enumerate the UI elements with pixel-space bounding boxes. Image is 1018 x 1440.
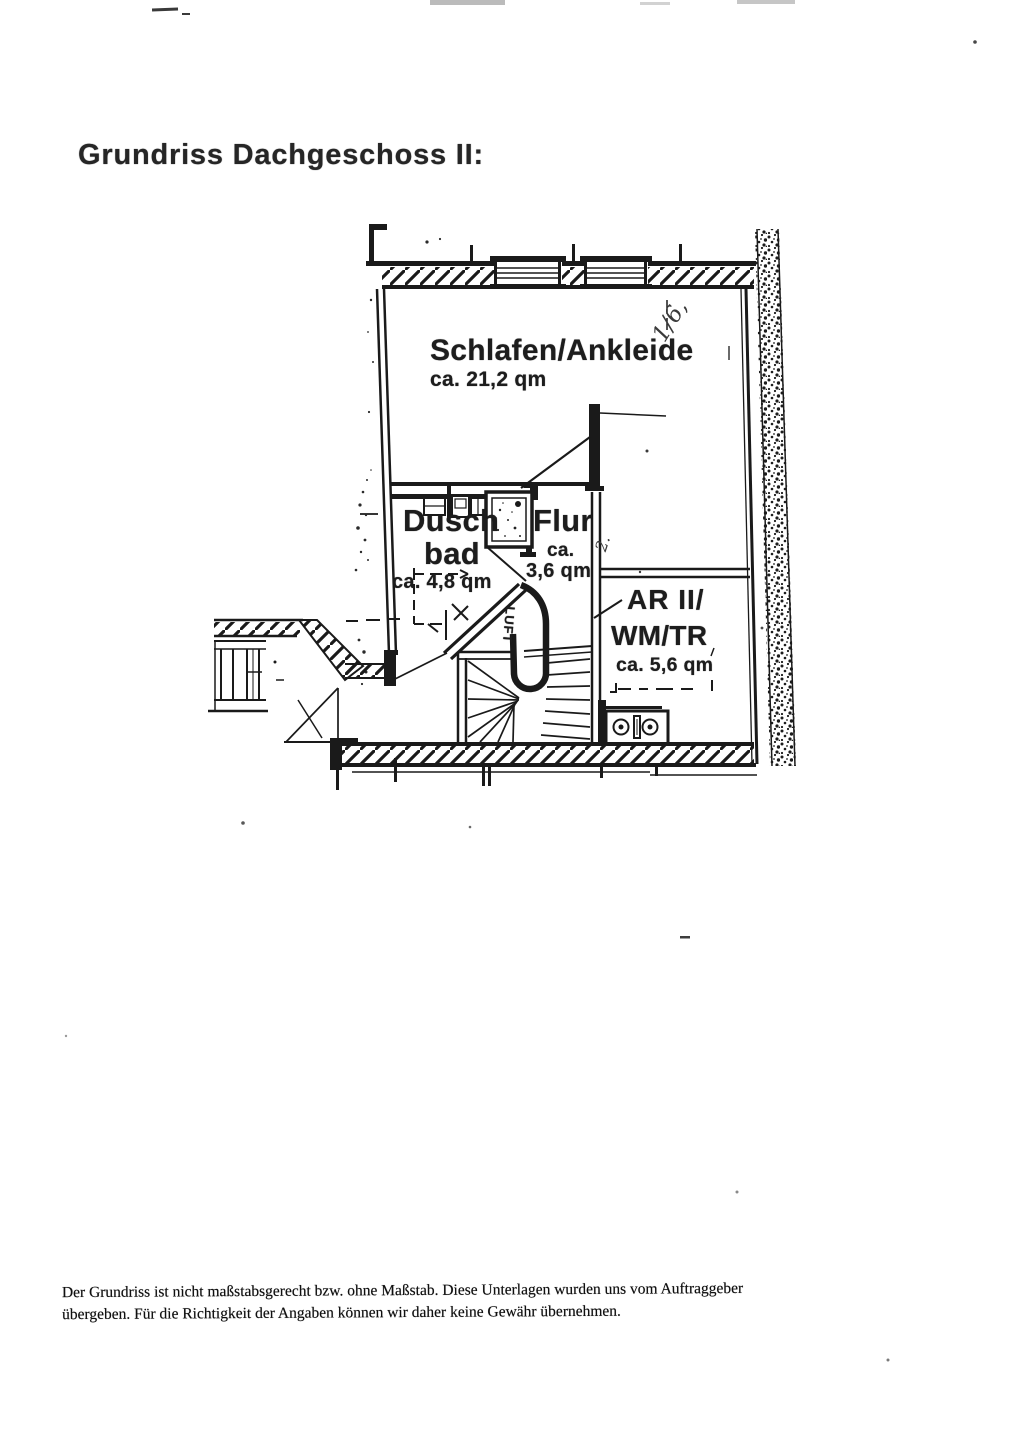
disclaimer-line-2: übergeben. Für die Richtigkeit der Angab… <box>62 1299 762 1325</box>
room-area-flur-line1: ca. <box>547 540 574 562</box>
disclaimer-line-1: Der Grundriss ist nicht maßstabsgerecht … <box>62 1278 762 1304</box>
washer-dryer-icon <box>598 700 668 746</box>
room-area-flur-line2: 3,6 qm <box>526 560 591 583</box>
floor-plan-drawing <box>0 0 1018 1440</box>
room-label-ar-line2: WM/TR <box>611 620 707 652</box>
room-label-ar-line1: AR II/ <box>627 584 705 616</box>
disclaimer-text: Der Grundriss ist nicht maßstabsgerecht … <box>62 1278 762 1325</box>
room-area-duschbad: ca. 4,8 qm <box>392 571 492 594</box>
scan-noise <box>65 0 977 1362</box>
storage-room-walls <box>592 492 750 742</box>
room-area-ar: ca. 5,6 qm <box>616 654 713 677</box>
room-area-schlafen-ankleide: ca. 21,2 qm <box>430 368 547 392</box>
room-label-flur: Flur <box>533 503 593 539</box>
bottom-wall <box>330 738 757 790</box>
room-label-duschbad-line2: bad <box>424 536 480 572</box>
scanned-document-page: { "document": { "title": "Grundriss Dach… <box>0 0 1018 1440</box>
left-exterior-structure <box>208 620 447 742</box>
top-wall <box>366 224 756 289</box>
page-title: Grundriss Dachgeschoss II: <box>78 139 484 172</box>
room-label-schlafen-ankleide: Schlafen/Ankleide <box>430 334 694 368</box>
right-wall <box>741 229 796 766</box>
room-label-duschbad-line1: Dusch <box>403 503 499 539</box>
